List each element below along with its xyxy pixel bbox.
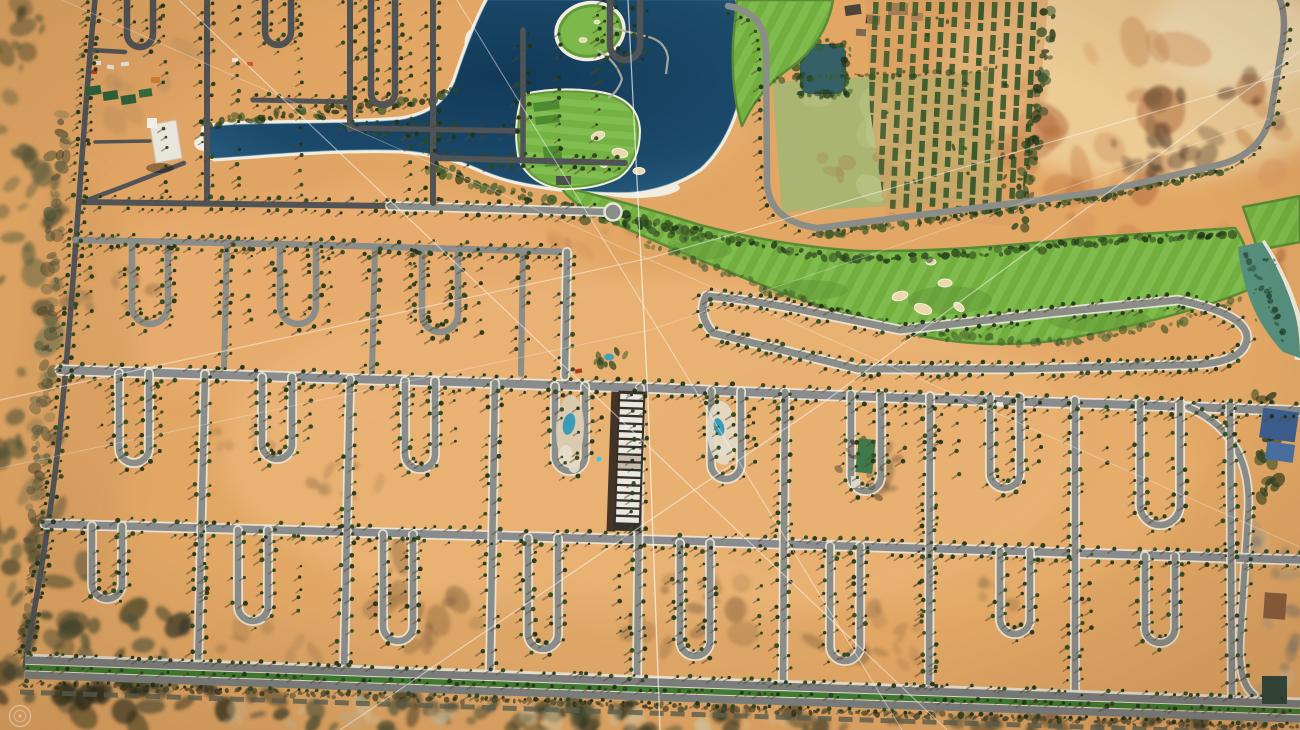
vignette	[0, 0, 1300, 730]
aerial-photo-viewport	[0, 0, 1300, 730]
aerial-scene	[0, 0, 1300, 730]
